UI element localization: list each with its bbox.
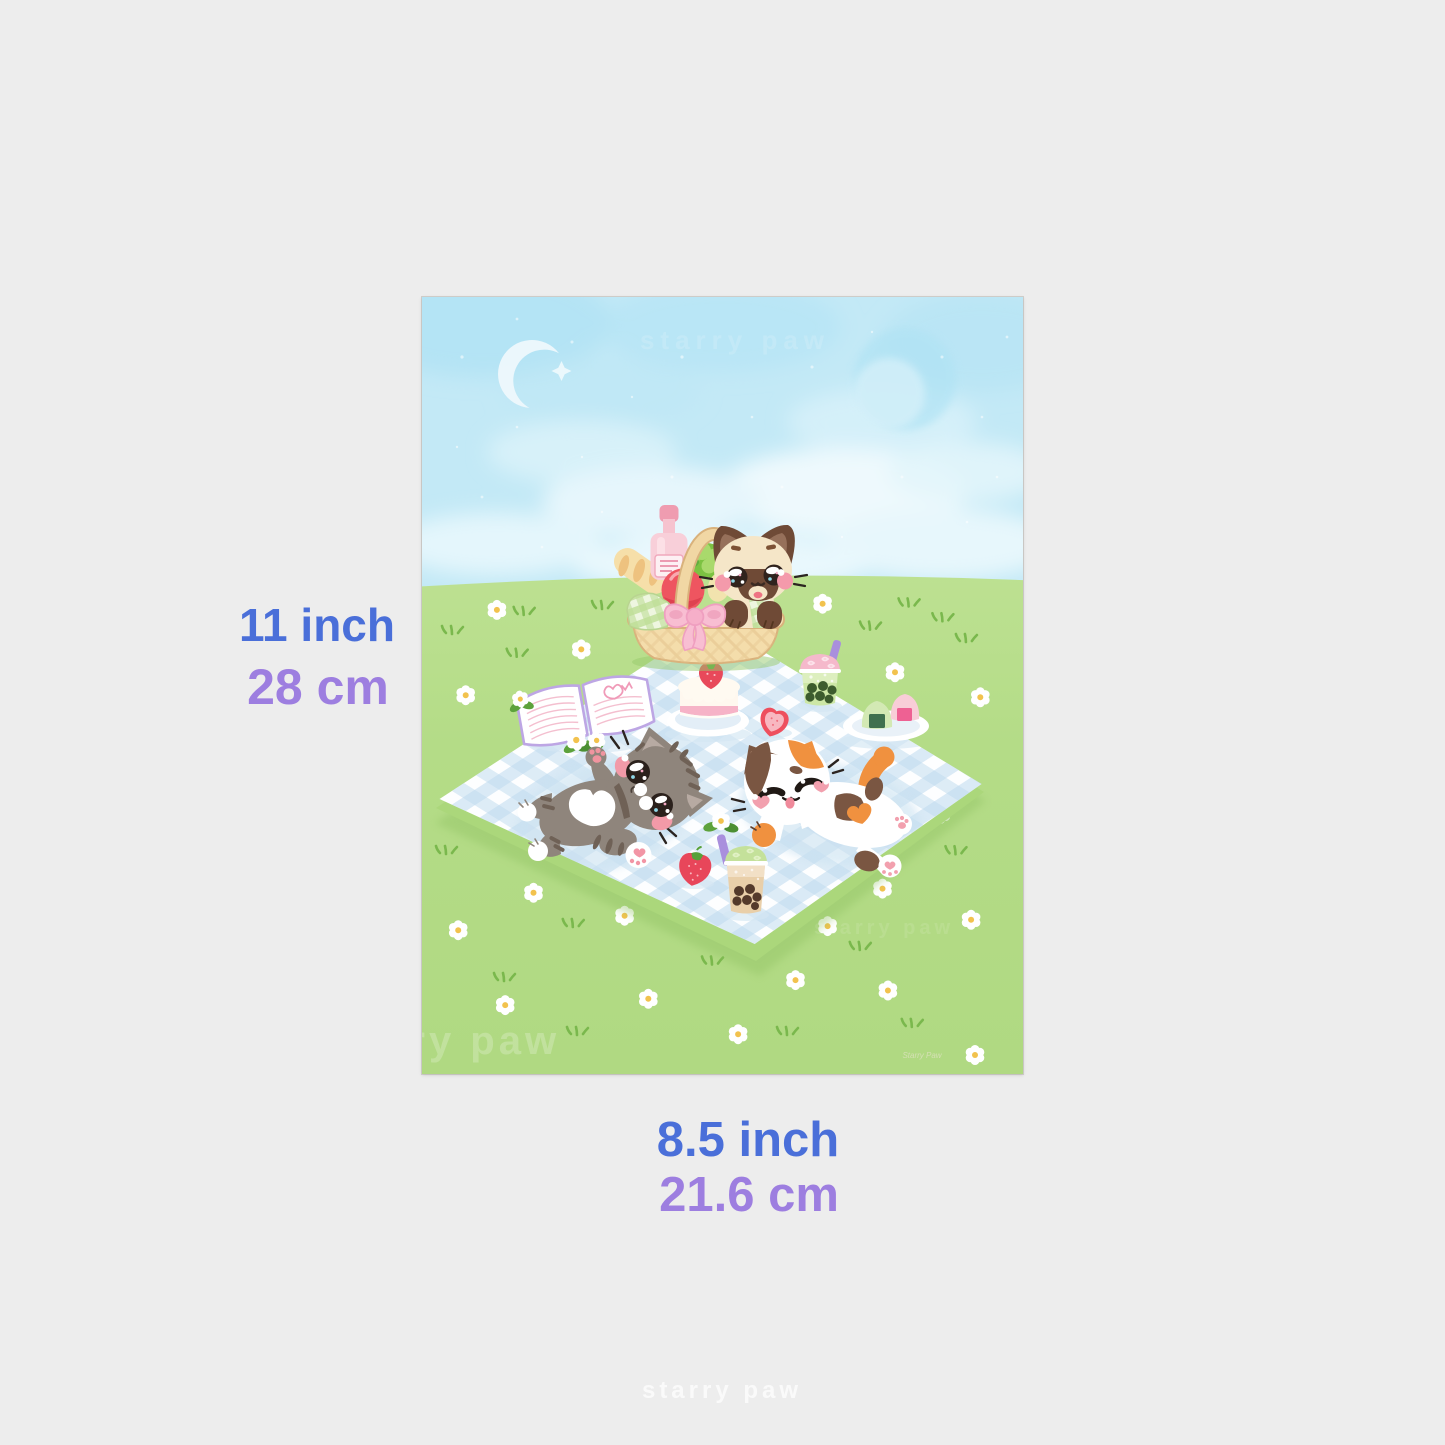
svg-text:starry paw: starry paw <box>814 917 954 939</box>
svg-text:starry paw: starry paw <box>640 325 830 355</box>
svg-text:Starry Paw: Starry Paw <box>902 1051 942 1060</box>
svg-text:starry paw: starry paw <box>422 1019 560 1063</box>
